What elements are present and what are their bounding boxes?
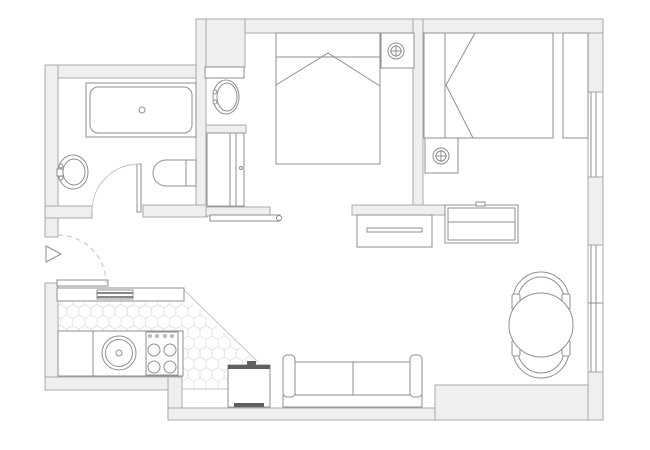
right-wall-mid [588,177,603,245]
entry-wall-stub [45,206,92,218]
floor-plan-page [0,0,650,450]
dresser-2-tab [476,202,485,206]
right-wall-upper [588,33,603,92]
left-wall-lower [45,283,58,390]
bathroom-sink-spout [57,169,63,176]
single-bed-headboard [563,33,588,138]
vanity-top-bar [205,67,244,78]
entry-arrow [46,246,61,262]
bathroom-sink-tap-b [59,176,63,180]
kitchen-bottom-wall [45,377,182,390]
sofa-arm-left [283,355,295,397]
bathroom-sink-tap-a [59,164,63,168]
tv-unit [228,365,270,407]
bottom-wall-right [435,385,603,420]
entry-door-arc [58,235,106,283]
niche-sink-tap-b [213,100,217,104]
bathtub-outer [86,83,196,137]
sofa-seat-right [353,362,410,395]
niche-sink-tap-a [213,90,217,94]
tv-unit-bottom-bar [234,403,264,407]
bedroom-living-wall [352,205,445,215]
kitchen-sink-outer [102,336,136,370]
dresser-1-handle [367,228,422,232]
tv-unit-nub [247,361,256,365]
bottom-wall-mid [168,408,438,420]
niche-separator [206,125,246,133]
bedroom-shelf-knob [277,216,282,221]
sofa-seat-left [295,362,353,395]
dresser-2 [445,205,518,243]
dining-table [509,293,573,357]
entry-door-leaf [57,280,108,286]
top-wall [197,19,603,33]
toilet [153,160,196,186]
floor-plan-svg [0,0,650,450]
stove [146,332,178,375]
bathroom-niche-wall [196,19,206,217]
wc-bottom-wall [143,205,207,217]
single-bed [424,33,553,138]
bathroom-door-arc [92,164,139,211]
tv-unit-top-bar [228,365,270,369]
sofa-back [283,395,422,407]
niche-closet [207,133,244,206]
bathroom-door-leaf [137,164,141,212]
sofa-arm-right [410,355,422,397]
right-wall-lower [588,372,603,420]
bedroom-wall-shelf [210,215,280,221]
bathroom-top-wall [45,65,197,78]
